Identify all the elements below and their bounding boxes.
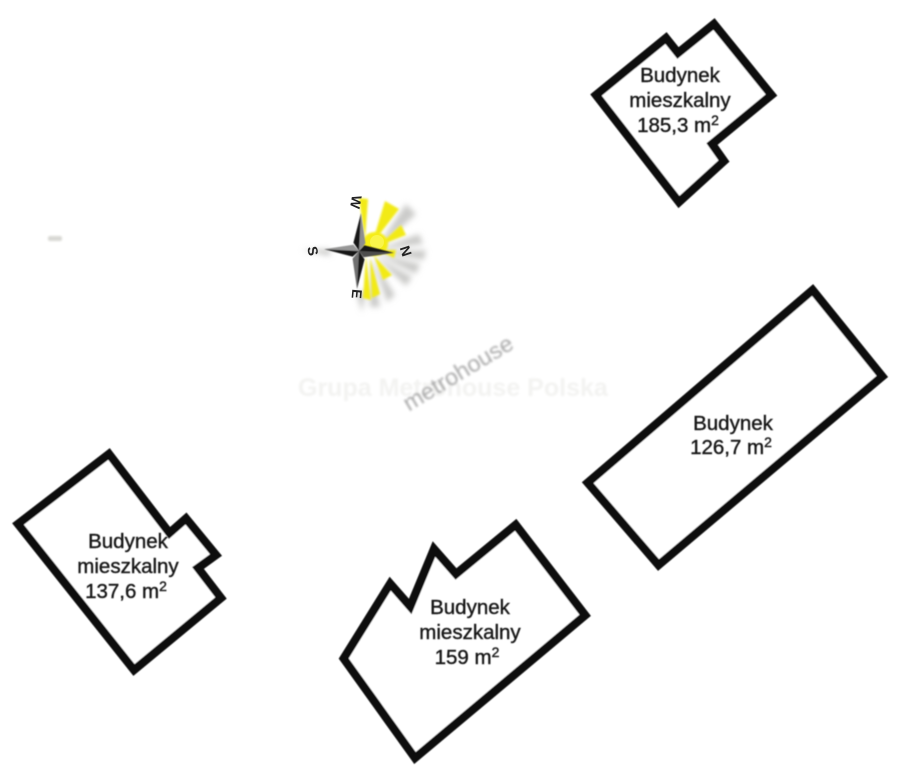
svg-text:159 m2: 159 m2 xyxy=(435,644,500,669)
svg-text:E: E xyxy=(349,289,366,300)
svg-text:185,3 m2: 185,3 m2 xyxy=(637,112,719,137)
svg-text:126,7 m2: 126,7 m2 xyxy=(690,434,772,459)
svg-text:Budynek: Budynek xyxy=(640,64,721,87)
svg-text:Budynek: Budynek xyxy=(88,530,169,553)
svg-text:mieszkalny: mieszkalny xyxy=(419,621,521,644)
svg-text:Budynek: Budynek xyxy=(430,596,511,619)
svg-text:mieszkalny: mieszkalny xyxy=(77,555,179,578)
svg-text:Budynek: Budynek xyxy=(693,412,774,435)
svg-text:137,6 m2: 137,6 m2 xyxy=(85,578,167,603)
svg-text:mieszkalny: mieszkalny xyxy=(629,89,731,112)
